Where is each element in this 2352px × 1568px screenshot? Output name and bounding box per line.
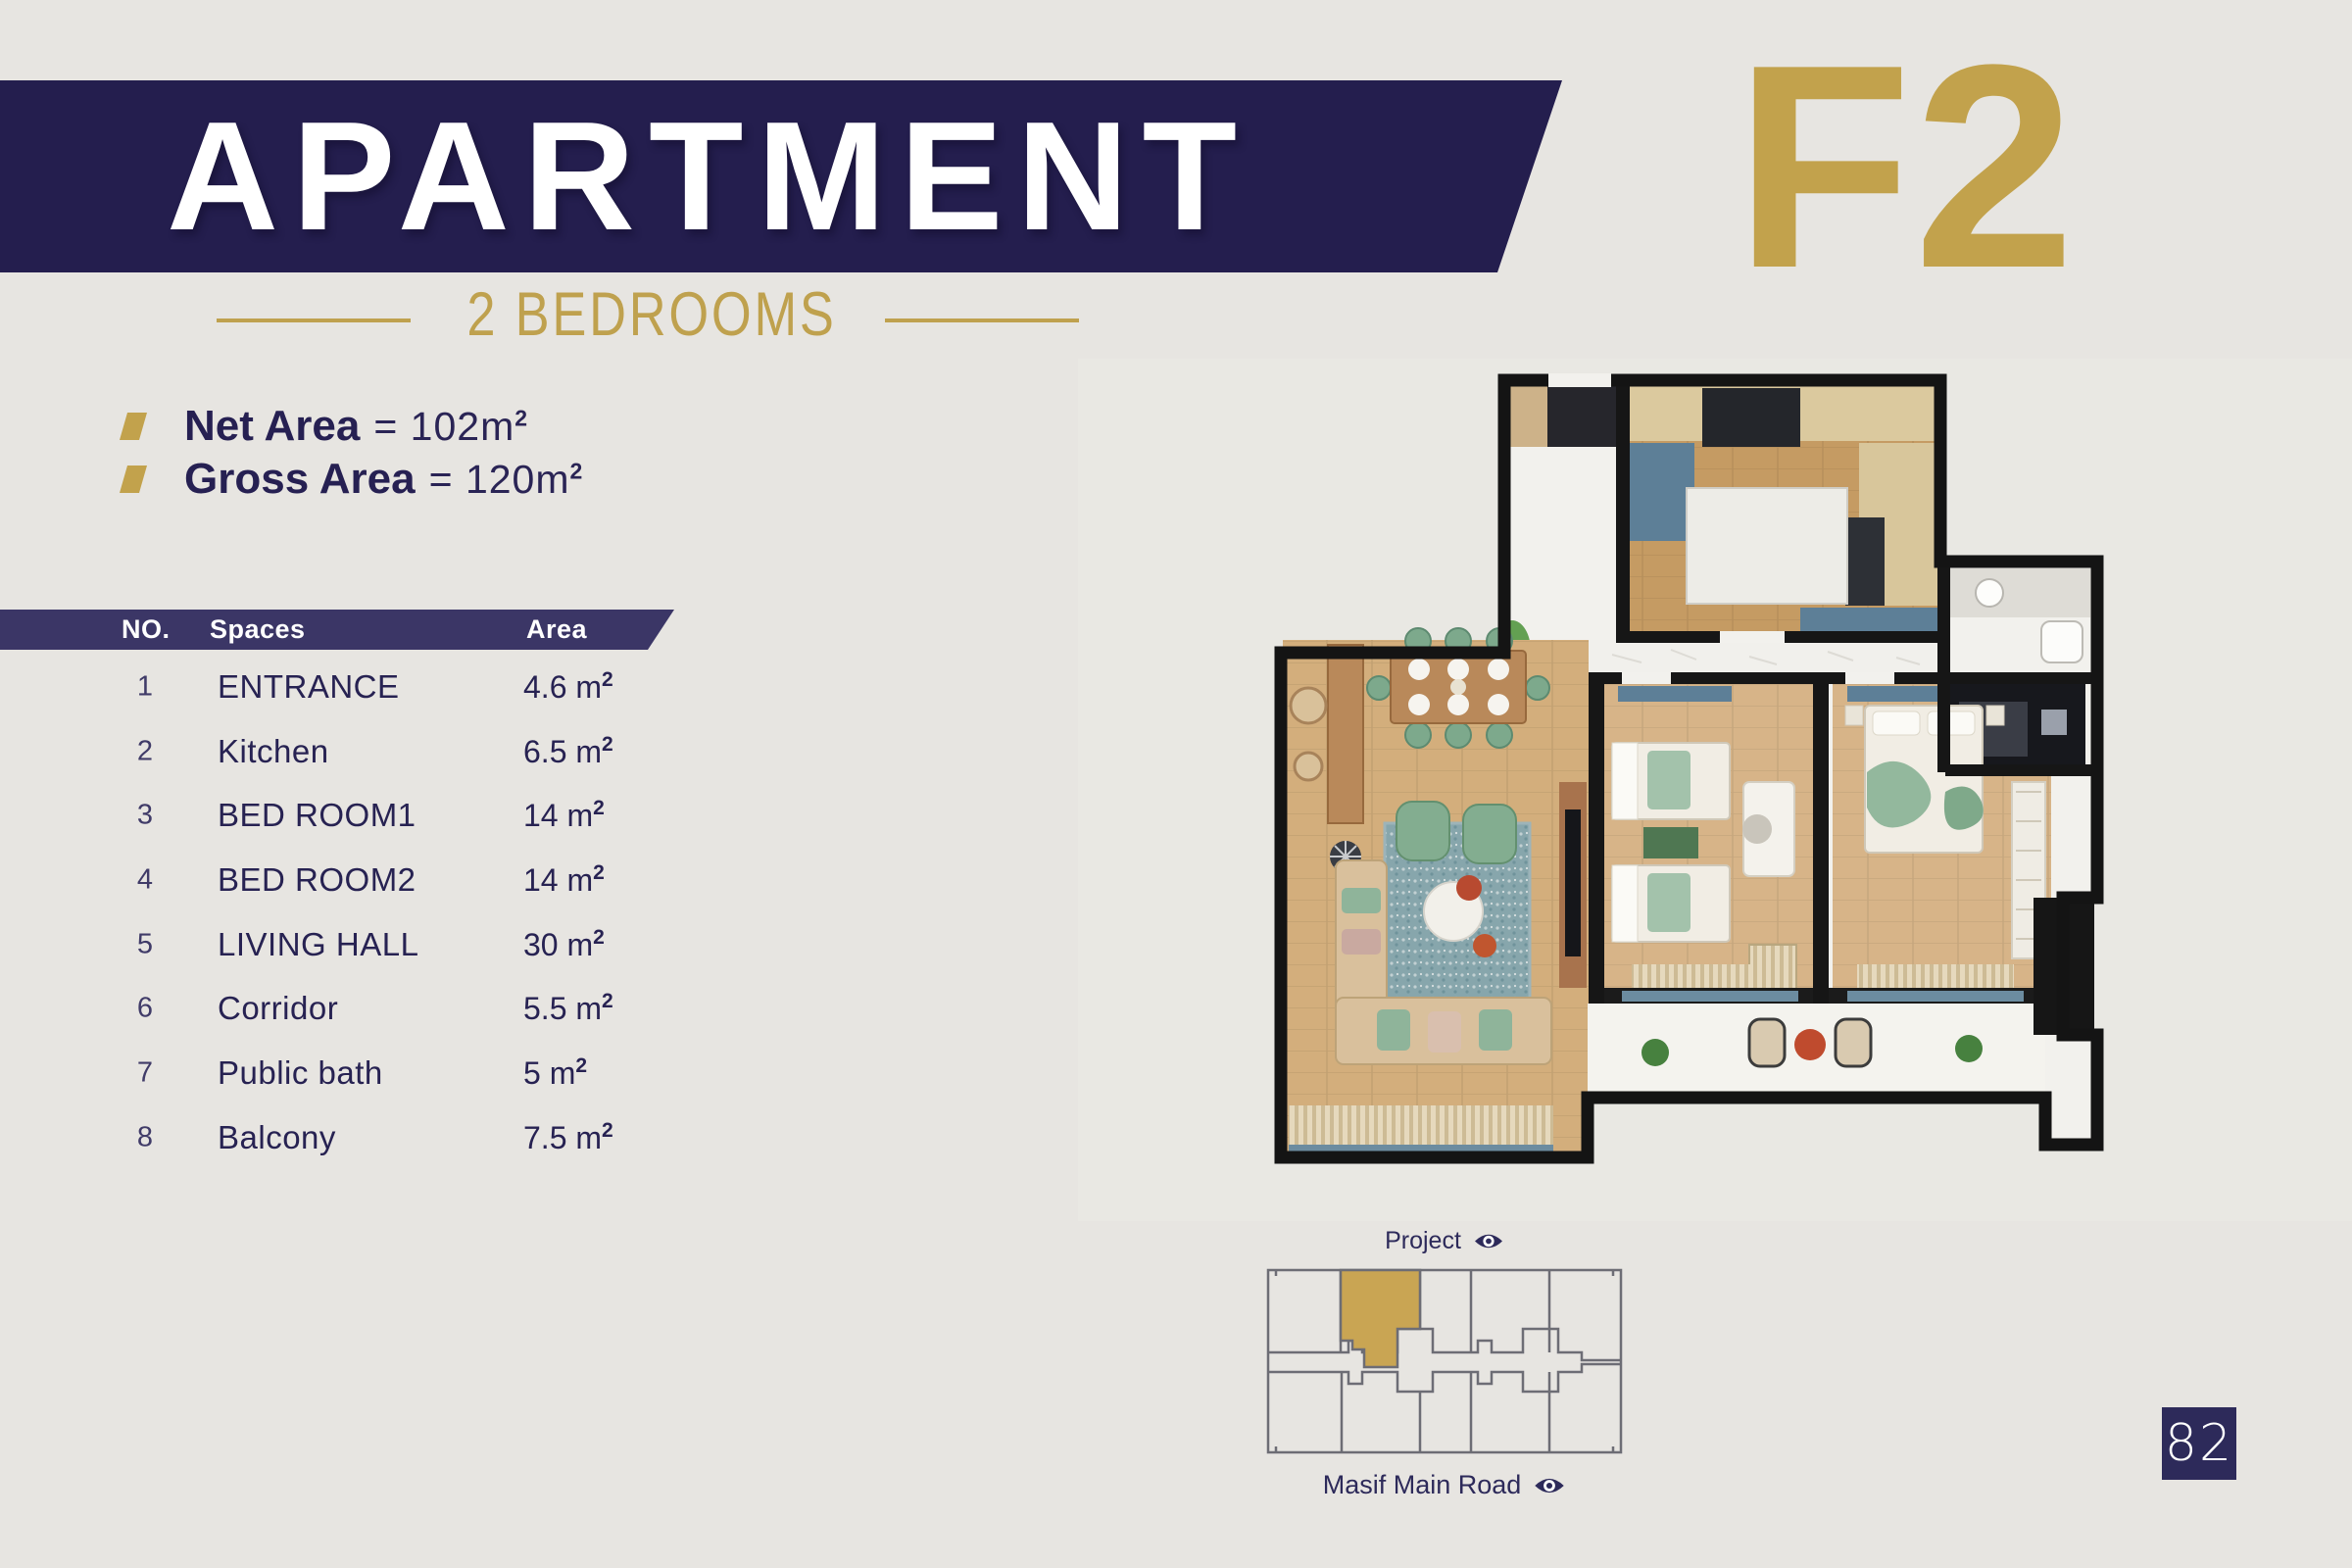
row-area-value: 7.5 m2 [523, 1119, 613, 1156]
row-area-value: 5.5 m2 [523, 990, 613, 1027]
row-number: 6 [116, 993, 174, 1025]
row-space-name: BED ROOM2 [218, 861, 416, 899]
row-area-value: 4.6 m2 [523, 668, 613, 706]
row-space-name: Balcony [218, 1119, 336, 1156]
subtitle-line-left [217, 318, 411, 322]
page-number: 82 [2162, 1407, 2236, 1480]
net-area-row: Net Area = 102m2 [123, 400, 528, 453]
row-number: 1 [116, 670, 174, 703]
gold-bullet-icon [120, 465, 147, 493]
col-header-spaces: Spaces [210, 610, 306, 650]
row-space-name: ENTRANCE [218, 668, 400, 706]
row-area-value: 6.5 m2 [523, 733, 613, 770]
subtitle: 2 BEDROOMS [440, 279, 863, 351]
col-header-no: NO. [122, 610, 171, 650]
road-label-row: Masif Main Road [1266, 1470, 1623, 1500]
gross-area-row: Gross Area = 120m2 [123, 453, 583, 506]
table-row: 6 Corridor 5.5 m2 [0, 976, 706, 1041]
table-row: 3 BED ROOM1 14 m2 [0, 783, 706, 848]
row-space-name: Corridor [218, 990, 338, 1027]
row-space-name: Public bath [218, 1054, 383, 1092]
project-label: Project [1385, 1227, 1461, 1255]
apartment-code: F2 [1735, 22, 2077, 312]
eye-icon [1533, 1476, 1566, 1495]
table-header: NO. Spaces Area [0, 610, 674, 650]
row-area-value: 30 m2 [523, 926, 605, 963]
row-number: 7 [116, 1056, 174, 1089]
row-number: 3 [116, 800, 174, 832]
gross-area-value: = 120m2 [429, 457, 584, 503]
table-row: 1 ENTRANCE 4.6 m2 [0, 655, 706, 719]
apartment-interior [1281, 373, 2097, 1157]
row-area-value: 14 m2 [523, 861, 605, 899]
brochure-page: APARTMENT F2 2 BEDROOMS Net Area = 102m2… [0, 0, 2352, 1568]
table-row: 5 LIVING HALL 30 m2 [0, 912, 706, 977]
net-area-label: Net Area [184, 402, 360, 451]
row-number: 2 [116, 735, 174, 767]
site-plan-diagram [1266, 1266, 1623, 1463]
page-title: APARTMENT [167, 80, 1250, 272]
row-space-name: Kitchen [218, 733, 329, 770]
floor-plan-image [1259, 361, 2112, 1184]
table-row: 8 Balcony 7.5 m2 [0, 1105, 706, 1170]
row-number: 8 [116, 1121, 174, 1153]
row-space-name: BED ROOM1 [218, 797, 416, 834]
table-row: 2 Kitchen 6.5 m2 [0, 719, 706, 784]
col-header-area: Area [526, 610, 587, 650]
highlighted-unit-f2 [1341, 1270, 1420, 1367]
subtitle-line-right [885, 318, 1079, 322]
table-row: 7 Public bath 5 m2 [0, 1041, 706, 1105]
gold-bullet-icon [120, 413, 147, 440]
row-area-value: 14 m2 [523, 797, 605, 834]
kitchen-area [1630, 384, 1940, 641]
eye-icon [1473, 1232, 1504, 1250]
net-area-value: = 102m2 [373, 404, 528, 450]
project-label-row: Project [1266, 1227, 1623, 1255]
row-area-value: 5 m2 [523, 1054, 587, 1092]
table-row: 4 BED ROOM2 14 m2 [0, 848, 706, 912]
row-space-name: LIVING HALL [218, 926, 418, 963]
gross-area-label: Gross Area [184, 455, 416, 504]
row-number: 5 [116, 928, 174, 960]
road-label: Masif Main Road [1323, 1470, 1522, 1500]
bedroom1-area [1604, 684, 1813, 1004]
row-number: 4 [116, 863, 174, 896]
spaces-table: 1 ENTRANCE 4.6 m2 2 Kitchen 6.5 m2 3 BED… [0, 655, 706, 1170]
